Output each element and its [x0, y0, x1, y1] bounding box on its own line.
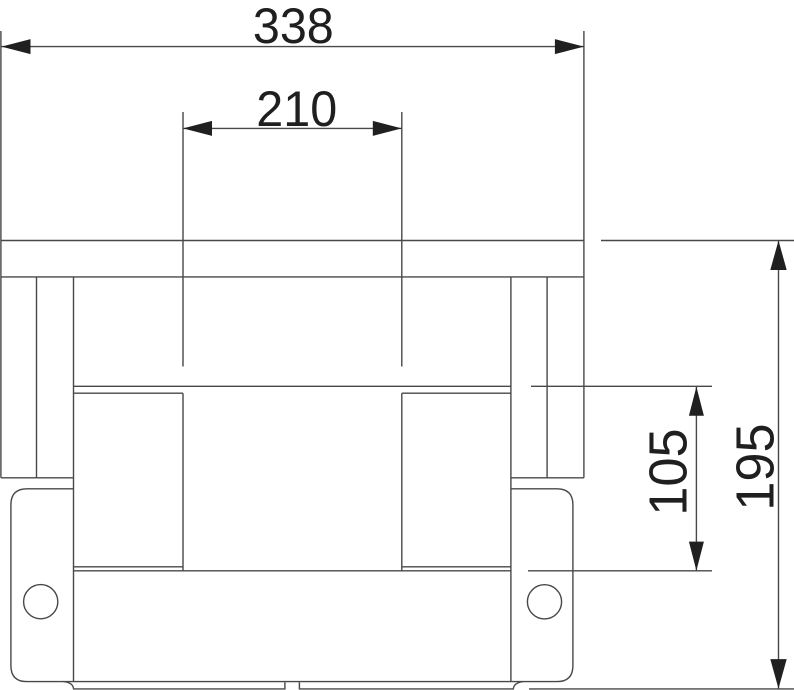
svg-text:338: 338 [253, 0, 334, 54]
svg-text:210: 210 [256, 81, 337, 137]
svg-text:195: 195 [726, 423, 786, 510]
svg-text:105: 105 [639, 428, 699, 515]
